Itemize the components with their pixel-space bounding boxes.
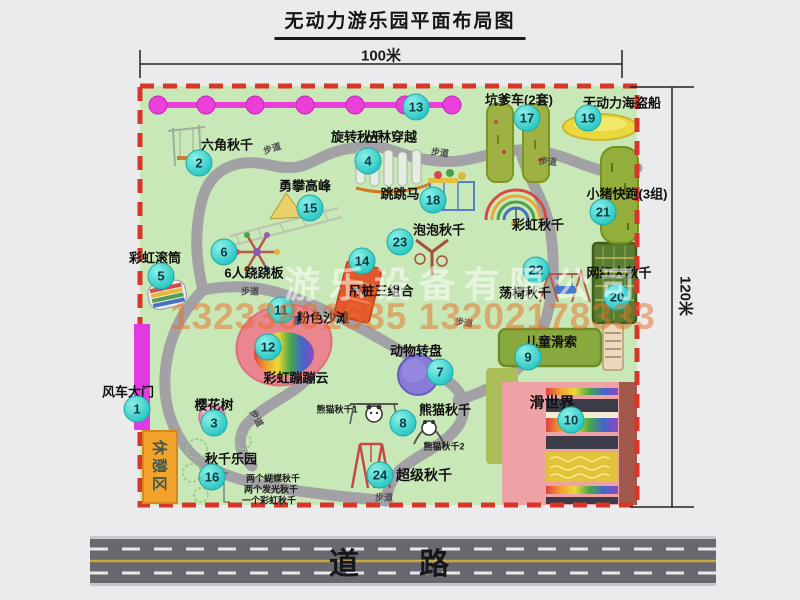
width-dimension-label: 100米 xyxy=(361,45,401,66)
screenshot-root: 无动力游乐园平面布局图 100米 120米 道 路 休憩区 风车大门1六角秋千2… xyxy=(0,0,800,600)
slide-world-icon xyxy=(486,368,637,505)
road-label: 道 路 xyxy=(329,539,475,583)
pirate-ship-icon xyxy=(563,114,637,140)
gate-icon xyxy=(134,324,150,430)
piggy-run-icon xyxy=(601,147,638,243)
height-dimension-label: 120米 xyxy=(676,276,697,316)
animal-turntable-icon xyxy=(398,355,438,395)
page-title: 无动力游乐园平面布局图 xyxy=(274,6,525,40)
rest-area-label: 休憩区 xyxy=(150,440,171,494)
watermark-phone: 13233801635 13202178333 xyxy=(170,296,656,338)
